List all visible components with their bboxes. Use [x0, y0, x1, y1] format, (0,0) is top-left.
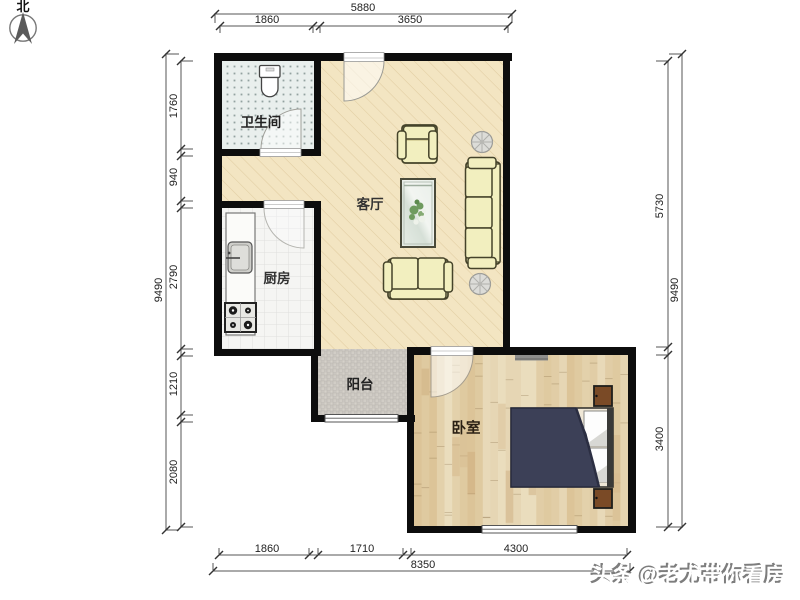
svg-text:阳台: 阳台 [347, 376, 374, 392]
svg-text:1760: 1760 [168, 94, 180, 118]
svg-text:940: 940 [168, 168, 180, 186]
svg-text:5730: 5730 [654, 194, 666, 218]
svg-text:北: 北 [16, 0, 29, 14]
svg-text:2080: 2080 [168, 460, 180, 484]
svg-text:客厅: 客厅 [356, 196, 384, 212]
svg-text:1860: 1860 [255, 14, 279, 26]
svg-text:3400: 3400 [654, 427, 666, 451]
svg-text:9490: 9490 [153, 278, 165, 302]
svg-text:卫生间: 卫生间 [241, 114, 282, 130]
svg-text:9490: 9490 [669, 278, 681, 302]
svg-text:1210: 1210 [168, 372, 180, 396]
svg-text:3650: 3650 [398, 14, 422, 26]
svg-text:1710: 1710 [350, 543, 374, 555]
svg-text:头条 @老尤带你看房: 头条 @老尤带你看房 [592, 564, 786, 588]
svg-text:2790: 2790 [168, 265, 180, 289]
svg-text:1860: 1860 [255, 543, 279, 555]
svg-text:4300: 4300 [504, 543, 528, 555]
svg-text:厨房: 厨房 [264, 270, 291, 286]
svg-text:5880: 5880 [351, 2, 375, 14]
svg-text:8350: 8350 [411, 559, 435, 571]
svg-text:卧室: 卧室 [452, 419, 481, 437]
